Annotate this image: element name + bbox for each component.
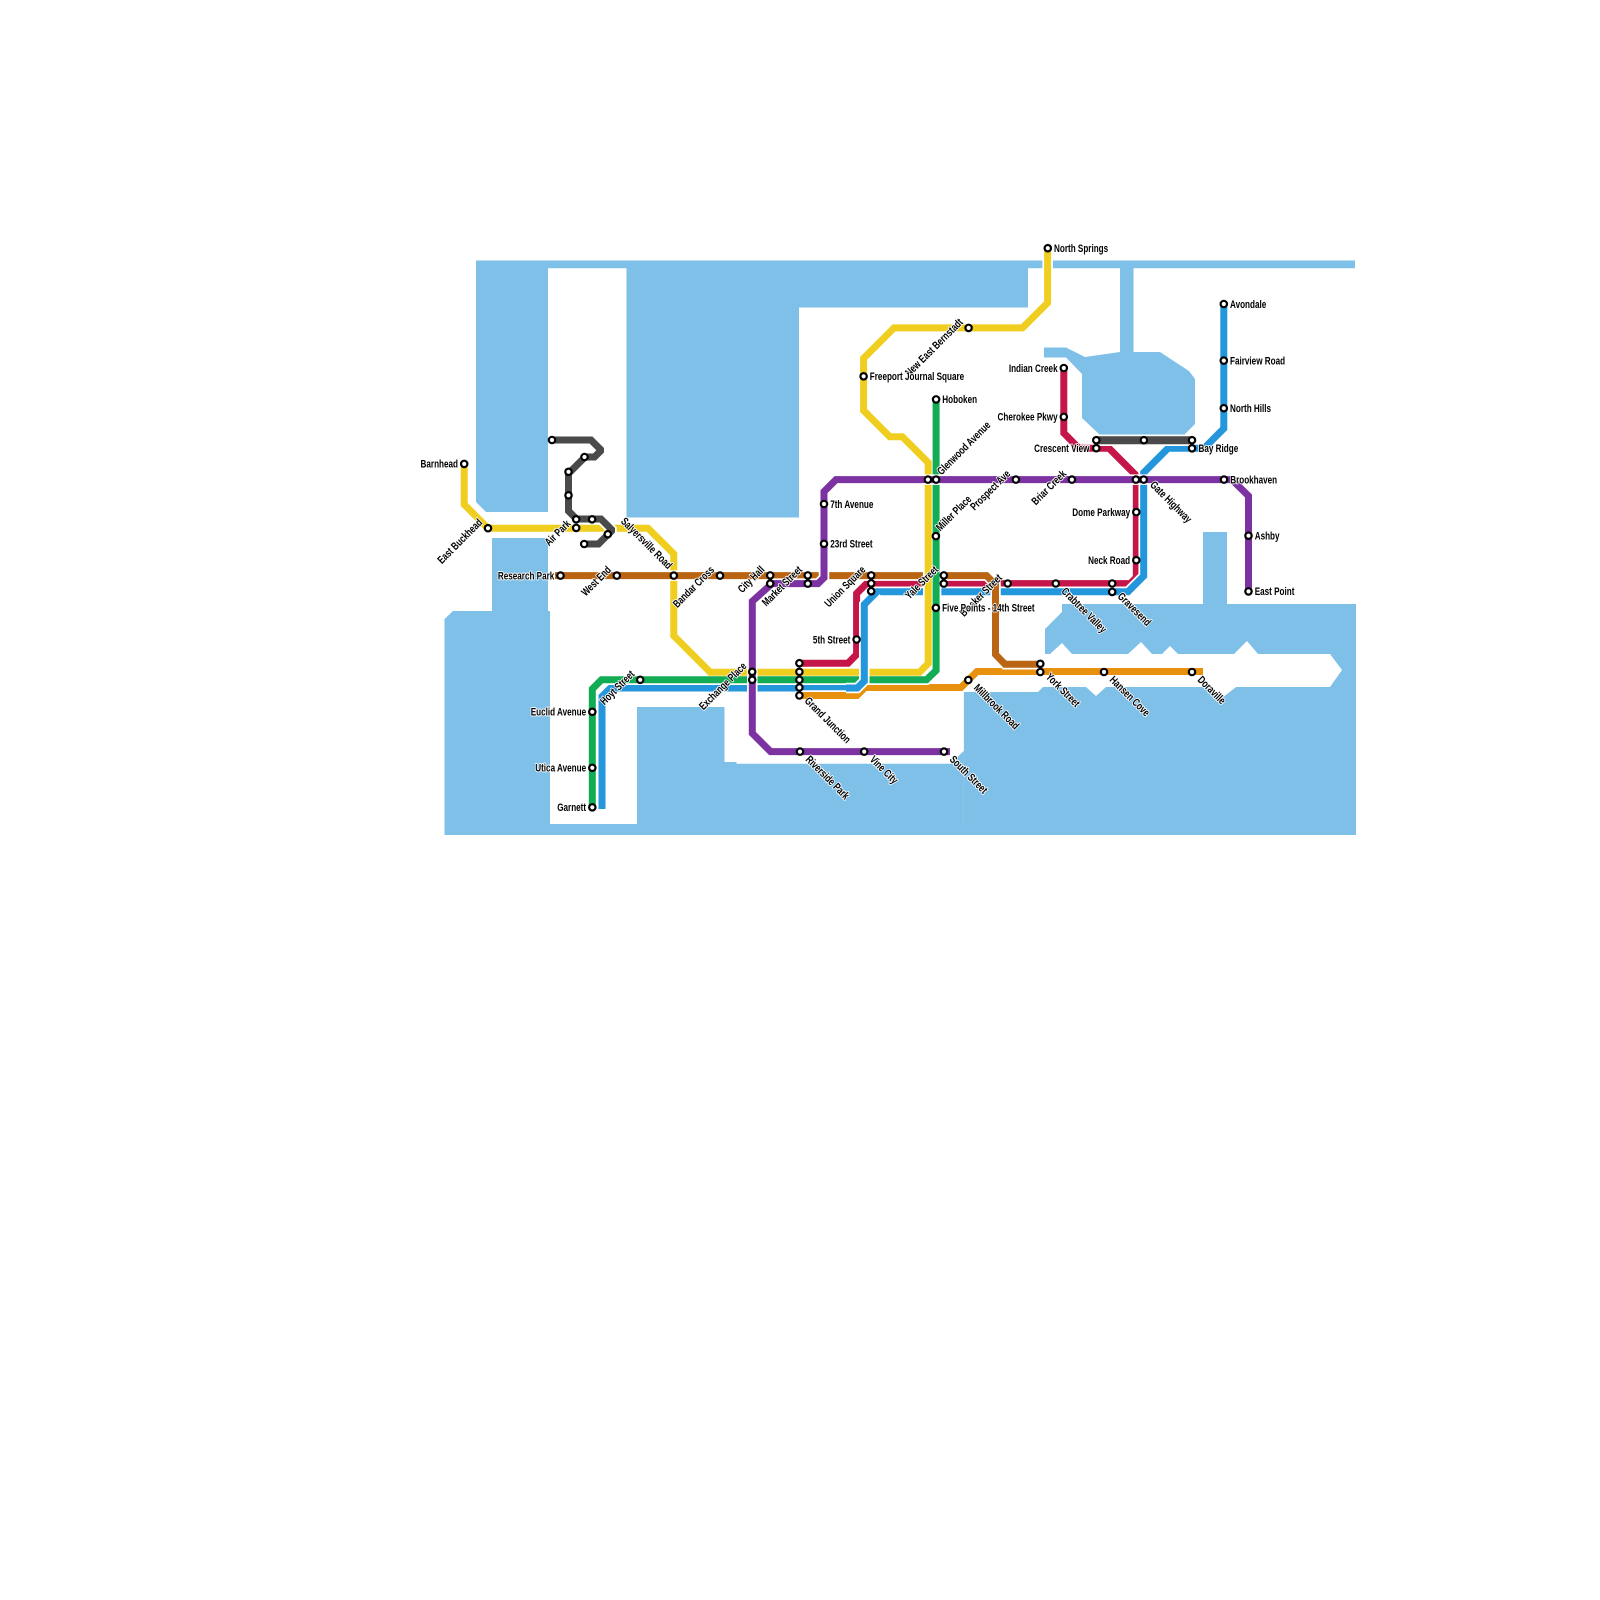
svg-text:7th Avenue: 7th Avenue [830,499,874,512]
svg-text:Crescent View: Crescent View [1034,443,1090,456]
svg-text:Utica Avenue: Utica Avenue [535,763,586,776]
svg-text:Brookhaven: Brookhaven [1230,474,1277,487]
svg-text:North Hills: North Hills [1230,403,1271,416]
svg-text:Euclid Avenue: Euclid Avenue [531,707,587,720]
svg-text:East Point: East Point [1255,586,1295,599]
svg-text:Bay Ridge: Bay Ridge [1199,443,1239,456]
svg-text:Ashby: Ashby [1255,530,1280,543]
svg-text:Cherokee Pkwy: Cherokee Pkwy [998,412,1059,425]
svg-text:23rd Street: 23rd Street [830,539,873,552]
svg-text:Avondale: Avondale [1230,299,1267,312]
svg-text:North Springs: North Springs [1054,243,1108,256]
svg-text:5th Street: 5th Street [813,634,851,647]
svg-text:Research Park: Research Park [498,570,555,583]
svg-text:Five Points - 14th Street: Five Points - 14th Street [942,603,1035,616]
svg-text:Indian Creek: Indian Creek [1009,363,1058,376]
svg-text:Neck Road: Neck Road [1088,555,1130,568]
svg-text:Dome Parkway: Dome Parkway [1072,507,1130,520]
svg-text:Garnett: Garnett [557,802,587,815]
svg-text:Freeport Journal Square: Freeport Journal Square [870,371,965,384]
svg-text:Barnhead: Barnhead [421,459,459,472]
svg-text:Hoboken: Hoboken [942,394,977,407]
svg-text:Fairview Road: Fairview Road [1230,355,1285,368]
